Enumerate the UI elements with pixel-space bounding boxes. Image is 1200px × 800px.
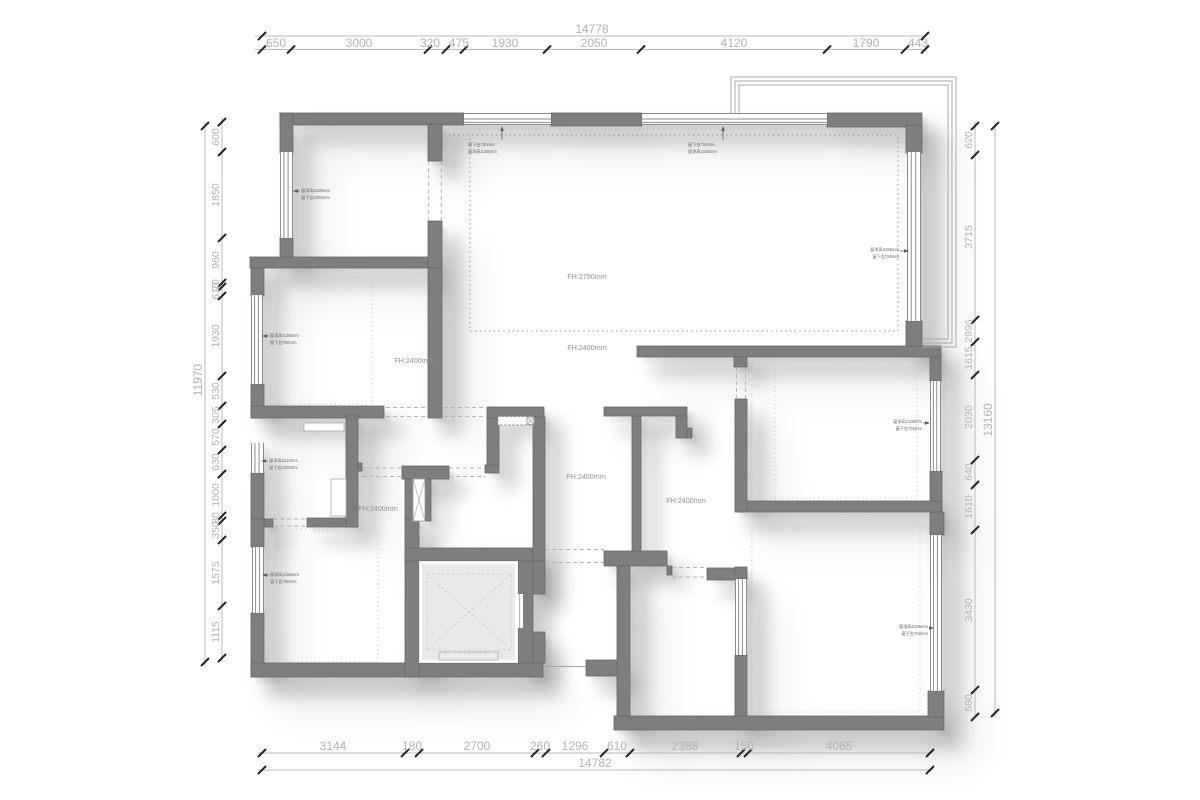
svg-text:FH:2400mm: FH:2400mm xyxy=(566,472,606,481)
svg-text:窗净高2185mm: 窗净高2185mm xyxy=(899,623,928,630)
svg-text:475: 475 xyxy=(449,36,469,50)
svg-text:窗下台750mm: 窗下台750mm xyxy=(895,425,922,432)
svg-text:4120: 4120 xyxy=(721,36,748,50)
svg-text:2388: 2388 xyxy=(672,739,699,753)
svg-text:3430: 3430 xyxy=(963,598,975,622)
svg-text:1000: 1000 xyxy=(210,483,222,507)
svg-text:FH:2400mm: FH:2400mm xyxy=(394,356,434,365)
svg-text:11970: 11970 xyxy=(191,363,205,396)
svg-text:FH:2400mm: FH:2400mm xyxy=(358,504,398,513)
svg-text:窗下台750mm: 窗下台750mm xyxy=(270,339,297,346)
svg-text:1930: 1930 xyxy=(492,36,519,50)
svg-text:1850: 1850 xyxy=(210,183,222,207)
svg-text:3715: 3715 xyxy=(963,225,975,249)
svg-text:2700: 2700 xyxy=(464,739,491,753)
svg-text:窗净高2185mm: 窗净高2185mm xyxy=(893,418,922,425)
svg-text:3144: 3144 xyxy=(320,739,347,753)
svg-text:1790: 1790 xyxy=(853,36,880,50)
svg-text:窗下台750mm: 窗下台750mm xyxy=(468,141,495,148)
svg-text:320: 320 xyxy=(420,36,440,50)
svg-text:2030: 2030 xyxy=(963,405,975,429)
svg-text:1930: 1930 xyxy=(210,324,222,348)
svg-text:620: 620 xyxy=(963,131,975,149)
svg-text:FH:2750mm: FH:2750mm xyxy=(567,272,607,281)
svg-text:630: 630 xyxy=(210,453,222,471)
svg-text:2050: 2050 xyxy=(581,36,608,50)
svg-text:窗下台750mm: 窗下台750mm xyxy=(270,578,297,585)
svg-text:600: 600 xyxy=(210,128,222,146)
svg-text:1615: 1615 xyxy=(963,346,975,370)
svg-text:580: 580 xyxy=(963,694,975,712)
svg-text:窗净高2185mm: 窗净高2185mm xyxy=(688,148,717,155)
svg-text:305: 305 xyxy=(210,406,222,424)
svg-text:窗净高2185mm: 窗净高2185mm xyxy=(270,571,299,578)
svg-text:14778: 14778 xyxy=(575,22,609,36)
svg-text:14782: 14782 xyxy=(578,756,612,770)
svg-text:150: 150 xyxy=(734,739,754,753)
svg-text:260: 260 xyxy=(530,739,550,753)
svg-text:窗下台1050mm: 窗下台1050mm xyxy=(269,464,298,471)
svg-text:650: 650 xyxy=(266,36,286,50)
svg-text:3000: 3000 xyxy=(346,36,373,50)
svg-text:窗下台750mm: 窗下台750mm xyxy=(872,253,899,260)
svg-text:610: 610 xyxy=(607,739,627,753)
svg-text:窗净高2185mm: 窗净高2185mm xyxy=(270,332,299,339)
svg-text:443: 443 xyxy=(908,36,928,50)
svg-text:640: 640 xyxy=(963,463,975,481)
svg-text:2996: 2996 xyxy=(963,319,975,343)
svg-text:570: 570 xyxy=(210,428,222,446)
svg-text:窗下台1050mm: 窗下台1050mm xyxy=(301,194,330,201)
svg-text:窗下台750mm: 窗下台750mm xyxy=(688,141,715,148)
svg-text:FH:2400mm: FH:2400mm xyxy=(666,496,706,505)
svg-text:窗净高1210mm: 窗净高1210mm xyxy=(269,457,298,464)
svg-text:窗净高2185mm: 窗净高2185mm xyxy=(468,148,497,155)
svg-text:窗净高2180mm: 窗净高2180mm xyxy=(301,187,330,194)
svg-text:960: 960 xyxy=(210,251,222,269)
svg-text:350: 350 xyxy=(210,521,222,539)
svg-text:530: 530 xyxy=(210,382,222,400)
svg-text:窗下台750mm: 窗下台750mm xyxy=(901,630,928,637)
svg-text:13160: 13160 xyxy=(981,403,995,437)
svg-text:180: 180 xyxy=(402,739,422,753)
svg-text:1296: 1296 xyxy=(562,739,589,753)
svg-text:FH:2400mm: FH:2400mm xyxy=(567,343,607,352)
svg-text:4065: 4065 xyxy=(826,739,853,753)
svg-text:610: 610 xyxy=(210,282,222,300)
svg-text:1115: 1115 xyxy=(210,621,222,643)
svg-text:1610: 1610 xyxy=(963,495,975,519)
svg-text:1575: 1575 xyxy=(210,561,222,585)
svg-text:窗净高2185mm: 窗净高2185mm xyxy=(870,246,899,253)
